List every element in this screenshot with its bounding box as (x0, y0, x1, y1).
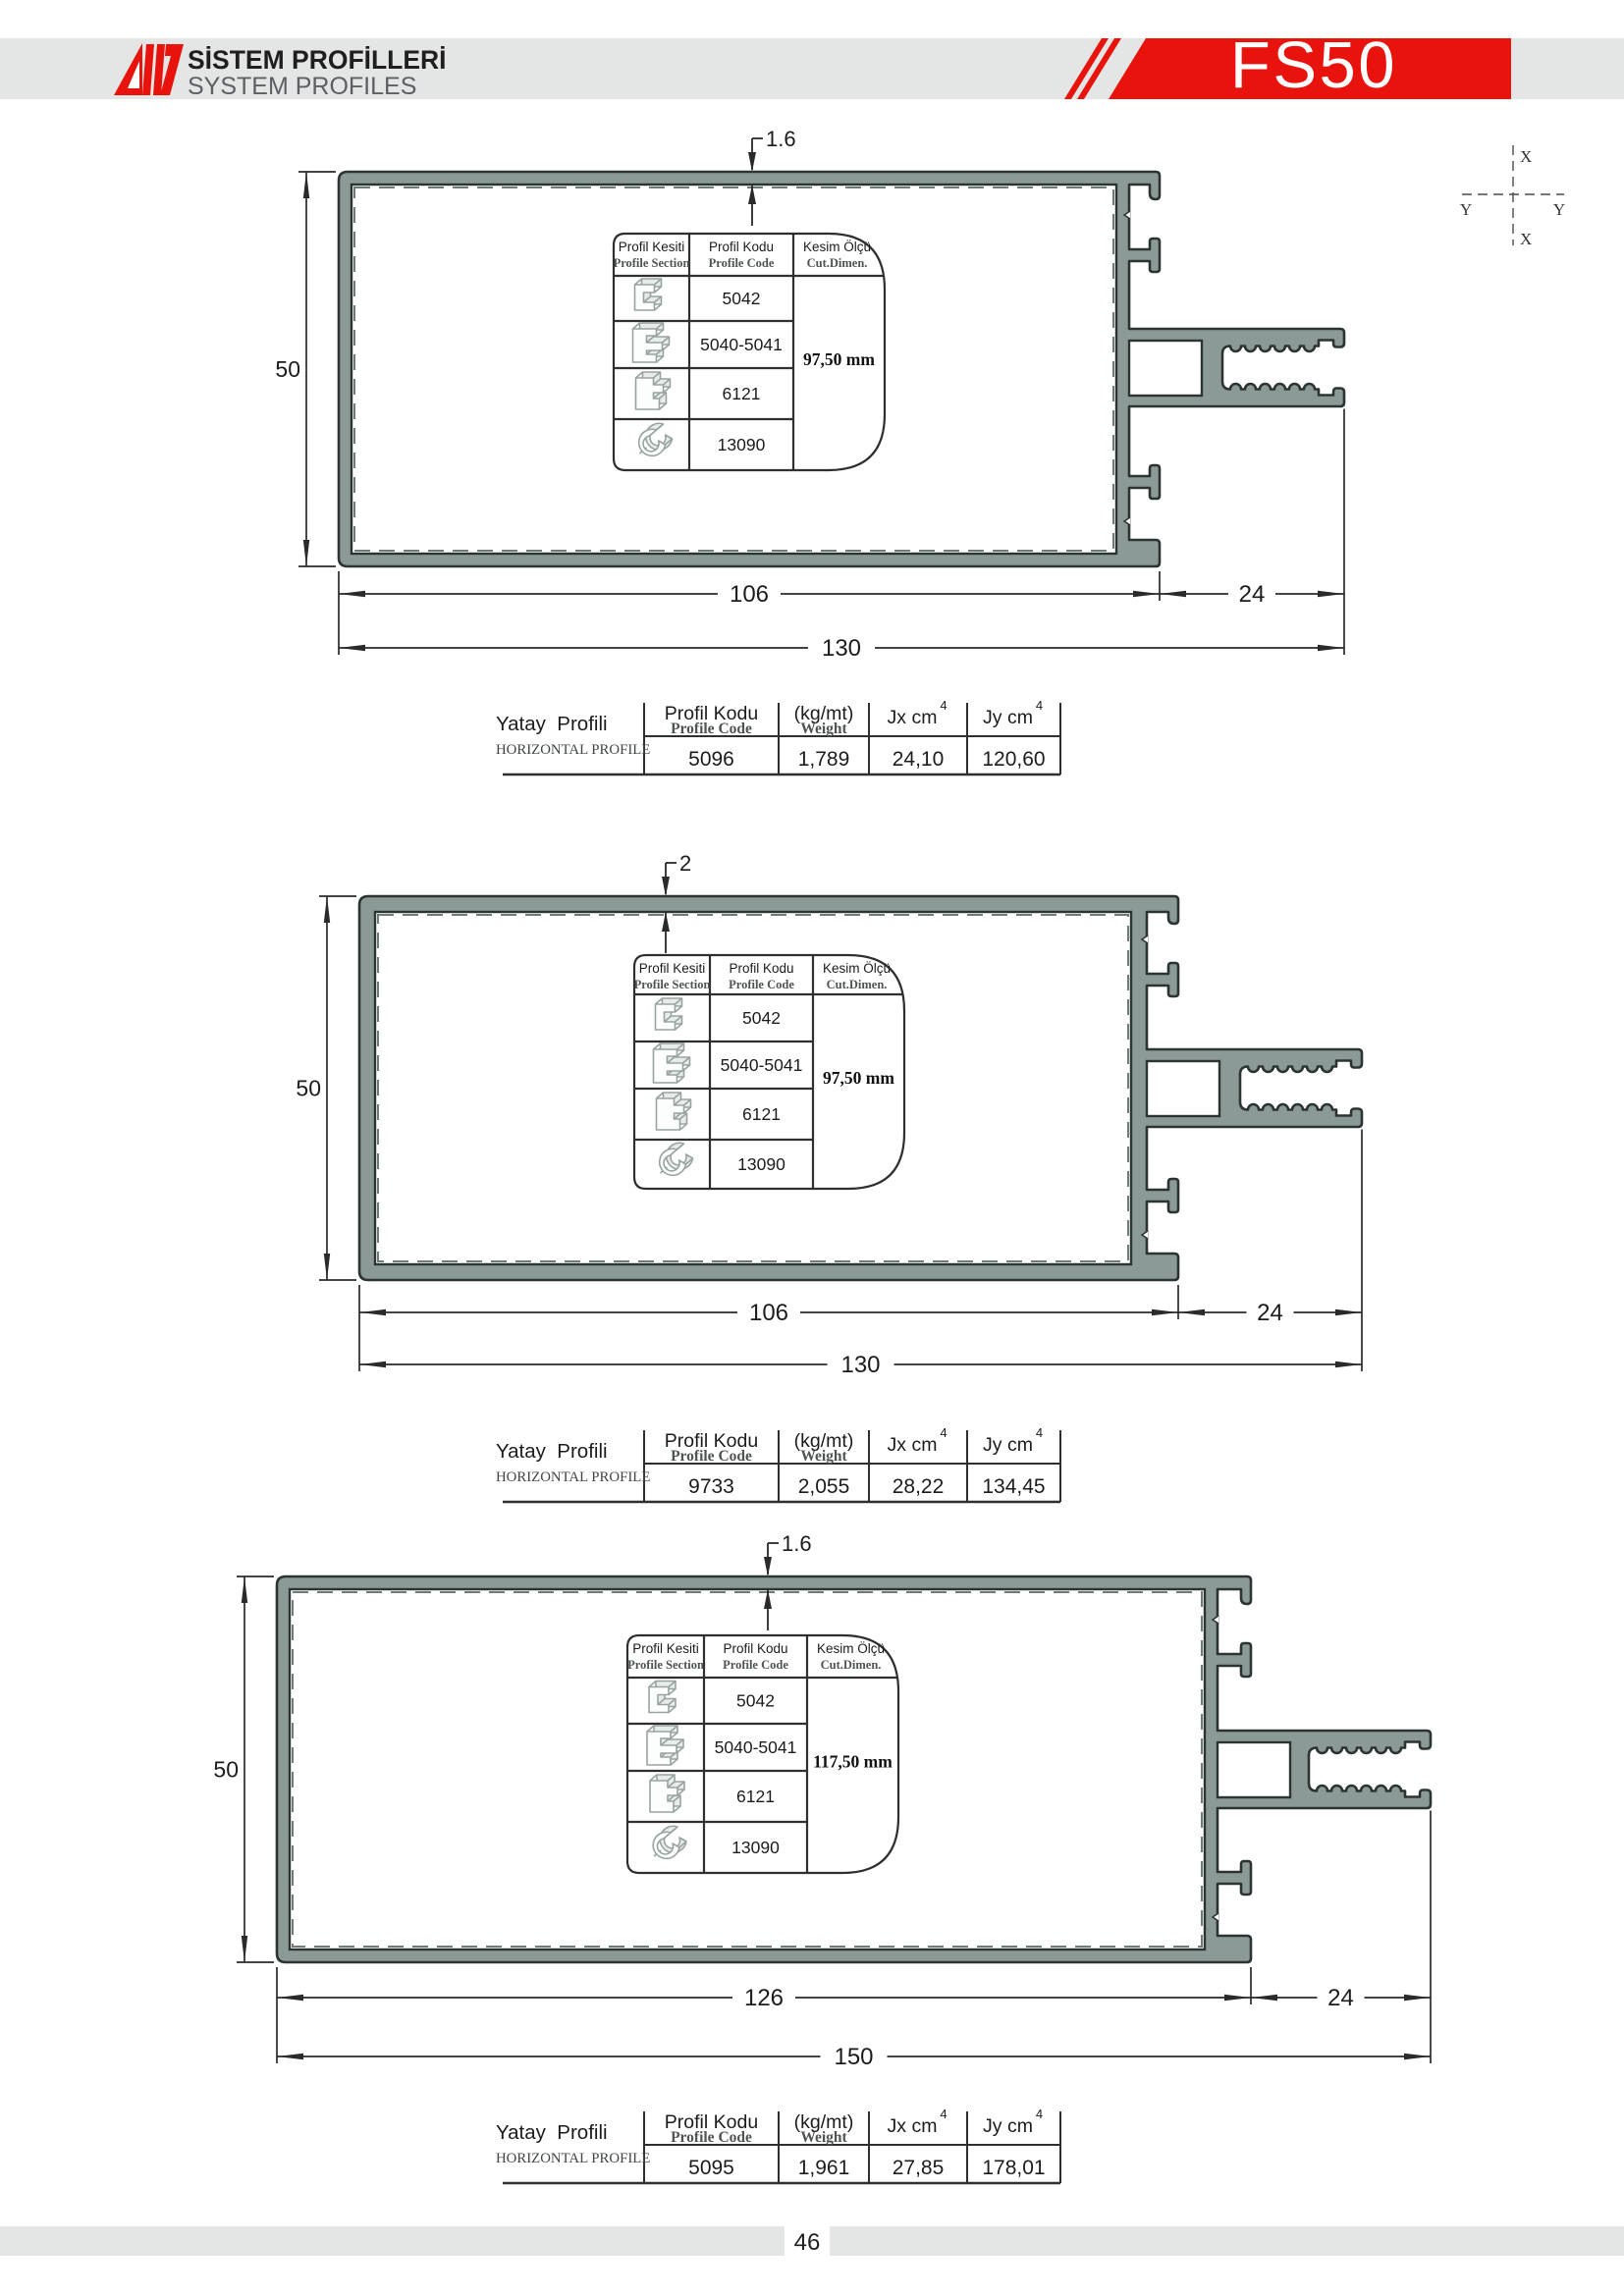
svg-text:Yatay Profili: Yatay Profili (496, 2121, 608, 2144)
svg-text:5096: 5096 (688, 748, 734, 771)
svg-text:13090: 13090 (718, 435, 766, 454)
svg-text:130: 130 (840, 1352, 880, 1378)
svg-text:Profile Section: Profile Section (634, 978, 711, 991)
svg-text:Yatay Profili: Yatay Profili (496, 1440, 608, 1463)
svg-text:FS50: FS50 (1230, 28, 1397, 102)
svg-text:50: 50 (296, 1076, 321, 1101)
svg-text:Cut.Dimen.: Cut.Dimen. (827, 978, 888, 991)
svg-text:Weight: Weight (800, 721, 847, 737)
svg-text:X: X (1520, 147, 1532, 166)
svg-text:24,10: 24,10 (893, 748, 945, 771)
svg-text:4: 4 (1036, 2107, 1043, 2121)
svg-text:24: 24 (1257, 1300, 1283, 1326)
svg-text:Weight: Weight (800, 2129, 847, 2146)
svg-text:X: X (1520, 230, 1532, 248)
svg-text:117,50 mm: 117,50 mm (813, 1752, 893, 1772)
svg-text:24: 24 (1239, 581, 1266, 608)
svg-text:Jx cm: Jx cm (888, 707, 938, 728)
svg-text:Jy cm: Jy cm (983, 2115, 1033, 2137)
svg-text:Jy cm: Jy cm (983, 1434, 1033, 1456)
svg-text:Profile Code: Profile Code (723, 1658, 788, 1672)
svg-text:Jx cm: Jx cm (888, 2115, 938, 2137)
svg-text:6121: 6121 (736, 1787, 775, 1806)
svg-text:1.6: 1.6 (766, 127, 796, 151)
svg-text:2,055: 2,055 (798, 1475, 850, 1498)
svg-text:Profil Kodu: Profil Kodu (729, 961, 793, 976)
svg-text:Cut.Dimen.: Cut.Dimen. (821, 1658, 882, 1672)
svg-text:Profile Code: Profile Code (709, 256, 775, 270)
svg-text:5042: 5042 (742, 1008, 781, 1028)
svg-text:Kesim Ölçü: Kesim Ölçü (823, 961, 891, 976)
svg-text:4: 4 (1036, 1425, 1043, 1440)
svg-text:5042: 5042 (723, 289, 761, 308)
svg-text:13090: 13090 (737, 1154, 785, 1174)
svg-text:1.6: 1.6 (782, 1531, 812, 1556)
svg-text:150: 150 (834, 2044, 873, 2070)
svg-text:Kesim Ölçü: Kesim Ölçü (803, 240, 871, 254)
svg-text:134,45: 134,45 (982, 1475, 1045, 1498)
svg-text:Cut.Dimen.: Cut.Dimen. (807, 256, 868, 270)
svg-text:Profile Section: Profile Section (614, 256, 690, 270)
svg-text:46: 46 (794, 2229, 821, 2256)
svg-text:Profil Kesiti: Profil Kesiti (632, 1641, 699, 1656)
svg-text:5040-5041: 5040-5041 (700, 335, 783, 354)
svg-text:Jx cm: Jx cm (888, 1434, 938, 1456)
svg-text:4: 4 (940, 698, 947, 713)
svg-text:6121: 6121 (742, 1104, 781, 1124)
svg-text:120,60: 120,60 (982, 748, 1045, 771)
svg-text:5040-5041: 5040-5041 (715, 1737, 797, 1757)
svg-text:9733: 9733 (688, 1475, 734, 1498)
svg-text:178,01: 178,01 (982, 2157, 1045, 2179)
svg-text:13090: 13090 (731, 1838, 780, 1857)
svg-text:50: 50 (213, 1757, 239, 1783)
svg-text:5042: 5042 (736, 1691, 775, 1711)
svg-text:97,50 mm: 97,50 mm (823, 1068, 894, 1088)
svg-text:4: 4 (940, 2107, 947, 2121)
svg-text:Profile Code: Profile Code (671, 1448, 752, 1465)
svg-text:130: 130 (822, 635, 861, 662)
svg-text:Profil Kodu: Profil Kodu (723, 1641, 787, 1656)
svg-text:Profil Kesiti: Profil Kesiti (639, 961, 706, 976)
svg-text:5040-5041: 5040-5041 (721, 1055, 803, 1075)
svg-text:27,85: 27,85 (893, 2157, 945, 2179)
svg-text:HORIZONTAL PROFILE: HORIZONTAL PROFILE (496, 1469, 650, 1485)
svg-text:Y: Y (1553, 200, 1565, 219)
svg-text:Profile Code: Profile Code (671, 721, 752, 737)
svg-text:5095: 5095 (688, 2157, 734, 2179)
svg-text:SİSTEM PROFİLLERİ: SİSTEM PROFİLLERİ (188, 45, 447, 75)
svg-text:Profile Code: Profile Code (729, 978, 794, 991)
svg-text:Y: Y (1460, 200, 1472, 219)
svg-text:SYSTEM PROFILES: SYSTEM PROFILES (188, 73, 416, 100)
svg-text:Profil Kodu: Profil Kodu (709, 240, 774, 254)
svg-text:Weight: Weight (800, 1448, 847, 1465)
svg-text:24: 24 (1327, 1985, 1354, 2011)
svg-text:1,789: 1,789 (798, 748, 850, 771)
svg-text:HORIZONTAL PROFILE: HORIZONTAL PROFILE (496, 742, 650, 758)
svg-text:6121: 6121 (723, 384, 761, 403)
svg-text:Profile Code: Profile Code (671, 2129, 752, 2146)
svg-text:Jy cm: Jy cm (983, 707, 1033, 728)
svg-text:Yatay Profili: Yatay Profili (496, 713, 608, 735)
svg-text:97,50 mm: 97,50 mm (803, 349, 875, 369)
svg-text:126: 126 (744, 1985, 784, 2011)
svg-text:HORIZONTAL PROFILE: HORIZONTAL PROFILE (496, 2151, 650, 2166)
svg-text:Profile Section: Profile Section (627, 1658, 704, 1672)
svg-text:106: 106 (749, 1300, 788, 1326)
svg-text:1,961: 1,961 (798, 2157, 850, 2179)
svg-text:28,22: 28,22 (893, 1475, 945, 1498)
svg-text:Kesim Ölçü: Kesim Ölçü (817, 1641, 885, 1656)
svg-text:4: 4 (1036, 698, 1043, 713)
svg-text:Profil Kesiti: Profil Kesiti (619, 240, 685, 254)
svg-text:50: 50 (275, 356, 300, 382)
svg-text:2: 2 (679, 851, 691, 876)
svg-text:106: 106 (730, 581, 769, 608)
svg-text:4: 4 (940, 1425, 947, 1440)
